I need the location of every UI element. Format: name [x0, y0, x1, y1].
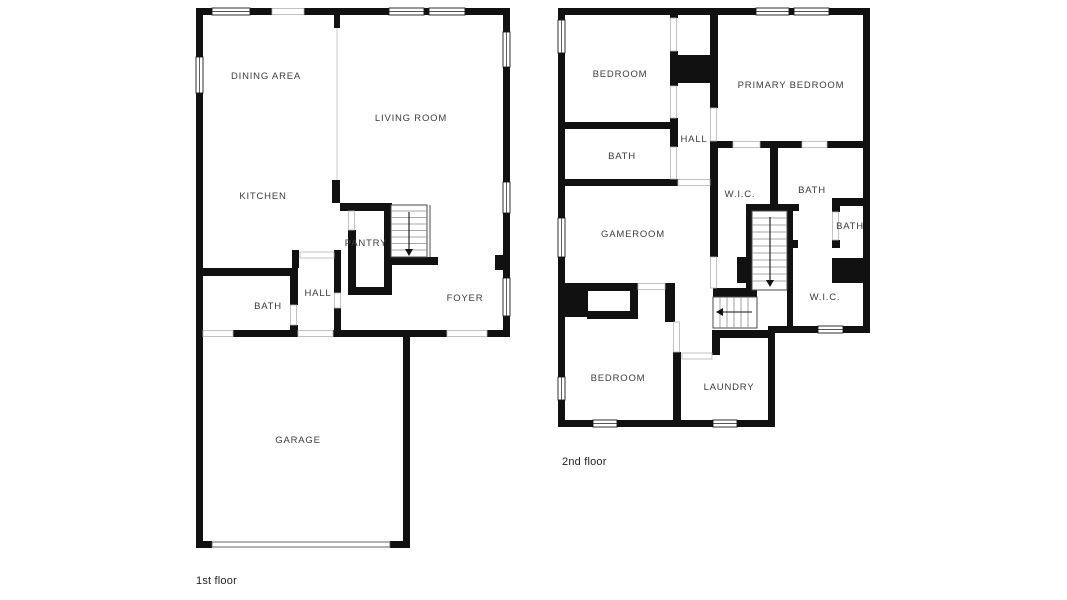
window-symbol [196, 57, 203, 93]
door-opening [298, 331, 333, 337]
window-symbol [818, 326, 843, 333]
solid-chase [677, 55, 713, 83]
floorplan-page: DINING AREA LIVING ROOM KITCHEN PANTRY H… [0, 0, 1067, 600]
window-symbol [593, 420, 617, 427]
room-label-bath-small: BATH [836, 221, 864, 232]
room-label-bedroom-bottom: BEDROOM [591, 373, 646, 384]
room-label-dining-area: DINING AREA [231, 71, 301, 82]
floorplan-drawing: DINING AREA LIVING ROOM KITCHEN PANTRY H… [0, 0, 1067, 600]
garage-door [212, 542, 390, 547]
door-opening [678, 180, 710, 186]
door-opening [671, 147, 677, 179]
staircase-first-floor [391, 205, 430, 257]
first-floor-walls [196, 8, 510, 548]
staircase-upper-flight [752, 211, 787, 290]
door-opening [349, 211, 355, 230]
door-opening [674, 322, 680, 352]
door-opening [802, 142, 827, 148]
window-symbol [558, 20, 565, 53]
solid-chase [558, 291, 588, 317]
window-symbol [713, 420, 737, 427]
window-symbol [389, 8, 424, 15]
room-label-gameroom: GAMEROOM [601, 229, 665, 240]
room-label-pantry: PANTRY [345, 238, 387, 249]
window-symbol [558, 218, 565, 257]
door-opening [671, 86, 677, 118]
door-opening [733, 142, 760, 148]
room-label-primary-bedroom: PRIMARY BEDROOM [738, 80, 845, 91]
wall-opening [272, 9, 304, 15]
room-label-wic-lower: W.I.C. [810, 292, 841, 303]
room-label-living-room: LIVING ROOM [375, 113, 447, 124]
door-opening [638, 284, 665, 290]
window-symbol [429, 8, 465, 15]
window-symbol [756, 8, 789, 15]
front-door-opening [447, 331, 487, 337]
first-floor-door-openings [203, 9, 487, 337]
room-label-garage: GARAGE [275, 435, 320, 446]
window-symbol [794, 8, 829, 15]
door-opening [300, 252, 334, 258]
room-label-bath-left: BATH [608, 151, 636, 162]
solid-chase [832, 258, 870, 283]
door-opening [711, 257, 717, 288]
room-label-bedroom-top: BEDROOM [593, 69, 648, 80]
door-opening [682, 353, 712, 359]
floor-caption-1st: 1st floor [196, 575, 237, 587]
window-symbol [558, 377, 565, 400]
room-label-hall: HALL [305, 288, 332, 299]
staircase-lower-flight [713, 297, 757, 328]
window-symbol [503, 182, 510, 213]
window-symbol [503, 278, 510, 316]
room-label-bath-mid: BATH [798, 185, 826, 196]
door-opening [671, 18, 677, 51]
second-floor-plan: BEDROOM PRIMARY BEDROOM BATH HALL W.I.C.… [558, 8, 870, 468]
room-label-bath: BATH [254, 301, 282, 312]
door-opening [291, 305, 297, 325]
first-floor-plan: DINING AREA LIVING ROOM KITCHEN PANTRY H… [196, 8, 510, 587]
door-opening [203, 331, 233, 337]
room-label-laundry: LAUNDRY [704, 382, 755, 393]
door-opening [711, 108, 717, 141]
room-label-wic-upper: W.I.C. [725, 189, 756, 200]
room-label-kitchen: KITCHEN [239, 191, 286, 202]
door-opening [335, 293, 341, 308]
room-label-hall: HALL [681, 134, 708, 145]
floor-caption-2nd: 2nd floor [562, 456, 607, 468]
window-symbol [503, 32, 510, 67]
window-symbol [212, 8, 250, 15]
room-label-foyer: FOYER [447, 293, 484, 304]
